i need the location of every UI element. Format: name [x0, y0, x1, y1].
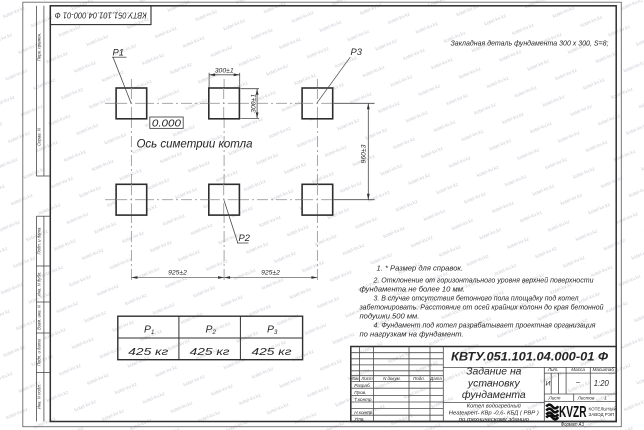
- svg-text:kotel-kv.kz: kotel-kv.kz: [274, 250, 298, 265]
- svg-text:kotel-kv.kz: kotel-kv.kz: [501, 111, 525, 126]
- svg-text:kotel-kv.kz: kotel-kv.kz: [226, 419, 250, 430]
- svg-text:Р1: Р1: [144, 325, 154, 337]
- svg-text:Р2: Р2: [239, 233, 251, 243]
- svg-text:kotel-kv.kz: kotel-kv.kz: [0, 282, 24, 297]
- svg-text:kotel-kv.kz: kotel-kv.kz: [61, 425, 85, 430]
- svg-text:kotel-kv.kz: kotel-kv.kz: [623, 398, 644, 413]
- svg-text:kotel-kv.kz: kotel-kv.kz: [210, 44, 234, 59]
- svg-text:kotel-kv.kz: kotel-kv.kz: [180, 311, 204, 326]
- svg-text:kotel-kv.kz: kotel-kv.kz: [20, 104, 44, 119]
- svg-text:kotel-kv.kz: kotel-kv.kz: [514, 85, 538, 100]
- svg-text:kotel-kv.kz: kotel-kv.kz: [205, 258, 229, 273]
- svg-text:kotel-kv.kz: kotel-kv.kz: [418, 83, 442, 98]
- svg-text:kotel-kv.kz: kotel-kv.kz: [142, 52, 166, 67]
- svg-text:425 кг: 425 кг: [252, 347, 292, 358]
- svg-text:kotel-kv.kz: kotel-kv.kz: [0, 371, 14, 386]
- svg-text:kotel-kv.kz: kotel-kv.kz: [10, 193, 34, 208]
- svg-text:kotel-kv.kz: kotel-kv.kz: [86, 33, 110, 48]
- svg-text:kotel-kv.kz: kotel-kv.kz: [319, 19, 343, 34]
- svg-text:kotel-kv.kz: kotel-kv.kz: [0, 157, 19, 172]
- svg-text:kotel-kv.kz: kotel-kv.kz: [294, 72, 318, 87]
- svg-text:kotel-kv.kz: kotel-kv.kz: [382, 225, 406, 240]
- svg-text:kotel-kv.kz: kotel-kv.kz: [250, 27, 274, 42]
- svg-text:Ось симетрии котла: Ось симетрии котла: [137, 137, 253, 151]
- svg-text:kotel-kv.kz: kotel-kv.kz: [418, 422, 442, 430]
- svg-text:kotel-kv.kz: kotel-kv.kz: [628, 184, 644, 199]
- svg-text:kotel-kv.kz: kotel-kv.kz: [261, 277, 285, 292]
- svg-text:kotel-kv.kz: kotel-kv.kz: [0, 397, 2, 412]
- svg-text:фундамента: фундамента: [462, 389, 526, 401]
- svg-text:kotel-kv.kz: kotel-kv.kz: [582, 77, 606, 92]
- svg-text:kotel-kv.kz: kotel-kv.kz: [112, 319, 136, 334]
- svg-text:kotel-kv.kz: kotel-kv.kz: [73, 60, 97, 75]
- svg-text:kotel-kv.kz: kotel-kv.kz: [307, 384, 331, 399]
- svg-text:Подп. и дата: Подп. и дата: [37, 227, 42, 255]
- svg-text:1: 1: [604, 395, 607, 400]
- svg-text:kotel-kv.kz: kotel-kv.kz: [175, 186, 199, 201]
- svg-text:925±2: 925±2: [168, 270, 187, 277]
- svg-text:kotel-kv.kz: kotel-kv.kz: [547, 219, 571, 234]
- svg-text:kotel-kv.kz: kotel-kv.kz: [317, 295, 341, 310]
- svg-text:по нагрузкам на фундамент.: по нагрузкам на фундамент.: [360, 329, 464, 338]
- svg-text:kotel-kv.kz: kotel-kv.kz: [489, 138, 513, 153]
- svg-text:2. Отклонение от горизонтально: 2. Отклонение от горизонтального уровня …: [373, 275, 595, 284]
- svg-text:kotel-kv.kz: kotel-kv.kz: [5, 68, 29, 83]
- svg-text:kotel-kv.kz: kotel-kv.kz: [491, 200, 515, 215]
- svg-text:kotel-kv.kz: kotel-kv.kz: [51, 175, 75, 190]
- svg-text:kotel-kv.kz: kotel-kv.kz: [593, 327, 617, 342]
- svg-text:kotel-kv.kz: kotel-kv.kz: [195, 8, 219, 23]
- svg-text:Лист: Лист: [360, 376, 373, 381]
- svg-text:Инв. N подл.: Инв. N подл.: [37, 384, 42, 409]
- svg-text:kotel-kv.kz: kotel-kv.kz: [496, 0, 520, 1]
- svg-text:kotel-kv.kz: kotel-kv.kz: [588, 202, 612, 217]
- svg-text:kotel-kv.kz: kotel-kv.kz: [76, 122, 100, 137]
- svg-text:kotel-kv.kz: kotel-kv.kz: [451, 217, 475, 232]
- svg-text:kotel-kv.kz: kotel-kv.kz: [86, 372, 110, 387]
- svg-text:kotel-kv.kz: kotel-kv.kz: [598, 113, 622, 128]
- svg-text:Лит.: Лит.: [547, 367, 559, 372]
- svg-text:kotel-kv.kz: kotel-kv.kz: [220, 294, 244, 309]
- svg-text:kotel-kv.kz: kotel-kv.kz: [210, 383, 234, 398]
- svg-text:Р3: Р3: [351, 47, 363, 57]
- svg-text:kotel-kv.kz: kotel-kv.kz: [238, 54, 262, 69]
- svg-text:kotel-kv.kz: kotel-kv.kz: [66, 211, 90, 226]
- svg-text:kotel-kv.kz: kotel-kv.kz: [611, 425, 635, 430]
- svg-text:kotel-kv.kz: kotel-kv.kz: [377, 100, 401, 115]
- svg-text:забетонировать. Расстояние от: забетонировать. Расстояние от осей крайн…: [359, 302, 605, 311]
- svg-text:kotel-kv.kz: kotel-kv.kz: [641, 158, 644, 173]
- svg-text:kotel-kv.kz: kotel-kv.kz: [159, 150, 183, 165]
- svg-text:kotel-kv.kz: kotel-kv.kz: [154, 25, 178, 40]
- svg-text:kotel-kv.kz: kotel-kv.kz: [251, 366, 275, 381]
- svg-text:kotel-kv.kz: kotel-kv.kz: [572, 166, 596, 181]
- svg-text:kotel-kv.kz: kotel-kv.kz: [124, 292, 148, 307]
- svg-text:Взам. инв. N: Взам. инв. N: [37, 304, 42, 330]
- svg-text:Задание на: Задание на: [466, 366, 522, 377]
- svg-text:kotel-kv.kz: kotel-kv.kz: [84, 310, 108, 325]
- svg-text:kotel-kv.kz: kotel-kv.kz: [266, 63, 290, 78]
- svg-text:kotel-kv.kz: kotel-kv.kz: [157, 427, 181, 430]
- svg-text:kotel-kv.kz: kotel-kv.kz: [185, 97, 209, 112]
- svg-text:kotel-kv.kz: kotel-kv.kz: [61, 86, 85, 101]
- svg-text:kotel-kv.kz: kotel-kv.kz: [390, 413, 414, 428]
- svg-text:kotel-kv.kz: kotel-kv.kz: [304, 322, 328, 337]
- svg-text:1. * Размер для справок.: 1. * Размер для справок.: [377, 263, 464, 272]
- svg-text:kotel-kv.kz: kotel-kv.kz: [428, 0, 452, 9]
- svg-text:0.000: 0.000: [152, 119, 181, 130]
- svg-text:kotel-kv.kz: kotel-kv.kz: [405, 110, 429, 125]
- svg-text:kotel-kv.kz: kotel-kv.kz: [580, 14, 604, 29]
- svg-text:kotel-kv.kz: kotel-kv.kz: [517, 147, 541, 162]
- svg-text:Изм.: Изм.: [350, 376, 359, 381]
- svg-text:kotel-kv.kz: kotel-kv.kz: [476, 164, 500, 179]
- svg-text:kotel-kv.kz: kotel-kv.kz: [638, 95, 644, 110]
- svg-text:N докум.: N докум.: [383, 376, 401, 381]
- svg-text:kotel-kv.kz: kotel-kv.kz: [337, 117, 361, 132]
- svg-text:kotel-kv.kz: kotel-kv.kz: [575, 228, 599, 243]
- svg-text:kotel-kv.kz: kotel-kv.kz: [53, 238, 77, 253]
- svg-text:КВТУ.051.101.04.000-01 Ф: КВТУ.051.101.04.000-01 Ф: [451, 349, 608, 363]
- svg-text:kotel-kv.kz: kotel-kv.kz: [48, 113, 72, 128]
- svg-text:kotel-kv.kz: kotel-kv.kz: [635, 33, 644, 48]
- svg-text:фундамента не более 10 мм.: фундамента не более 10 мм.: [360, 284, 466, 293]
- svg-text:kotel-kv.kz: kotel-kv.kz: [291, 10, 315, 25]
- svg-text:kotel-kv.kz: kotel-kv.kz: [355, 216, 379, 231]
- svg-text:kotel-kv.kz: kotel-kv.kz: [114, 381, 138, 396]
- svg-text:kotel-kv.kz: kotel-kv.kz: [527, 58, 551, 73]
- svg-text:kotel-kv.kz: kotel-kv.kz: [68, 274, 92, 289]
- svg-text:kotel-kv.kz: kotel-kv.kz: [129, 417, 153, 430]
- svg-text:Подп.: Подп.: [413, 376, 425, 381]
- svg-text:kotel-kv.kz: kotel-kv.kz: [235, 0, 259, 6]
- svg-text:Heatexpert- КВр -0,6- КБД ( РВ: Heatexpert- КВр -0,6- КБД ( РВР ): [449, 411, 539, 417]
- svg-text:kotel-kv.kz: kotel-kv.kz: [319, 358, 343, 373]
- svg-text:kotel-kv.kz: kotel-kv.kz: [236, 330, 260, 345]
- svg-text:Масштаб: Масштаб: [592, 367, 614, 372]
- svg-text:kotel-kv.kz: kotel-kv.kz: [301, 260, 325, 275]
- svg-text:Подп. и дата: Подп. и дата: [37, 339, 42, 367]
- svg-text:kotel-kv.kz: kotel-kv.kz: [415, 359, 439, 374]
- svg-text:kotel-kv.kz: kotel-kv.kz: [276, 313, 300, 328]
- svg-text:kotel-kv.kz: kotel-kv.kz: [0, 94, 16, 109]
- svg-text:Т.контр.: Т.контр.: [354, 397, 373, 402]
- svg-text:kotel-kv.kz: kotel-kv.kz: [433, 119, 457, 134]
- svg-text:kotel-kv.kz: kotel-kv.kz: [215, 169, 239, 184]
- svg-text:Перв. примен.: Перв. примен.: [37, 33, 42, 62]
- svg-text:И: И: [545, 380, 550, 387]
- svg-text:установку: установку: [467, 378, 521, 389]
- svg-text:kotel-kv.kz: kotel-kv.kz: [286, 224, 310, 239]
- svg-text:kotel-kv.kz: kotel-kv.kz: [170, 400, 194, 415]
- svg-text:kotel-kv.kz: kotel-kv.kz: [633, 309, 644, 324]
- svg-text:kotel-kv.kz: kotel-kv.kz: [430, 57, 454, 72]
- svg-text:kotel-kv.kz: kotel-kv.kz: [324, 144, 348, 159]
- svg-text:kotel-kv.kz: kotel-kv.kz: [446, 92, 470, 107]
- svg-text:–: –: [575, 377, 581, 386]
- svg-text:ЗАВОД РЭП: ЗАВОД РЭП: [589, 412, 615, 417]
- svg-text:kotel-kv.kz: kotel-kv.kz: [223, 356, 247, 371]
- svg-text:по техническому зданию: по техническому зданию: [459, 417, 529, 423]
- svg-text:kotel-kv.kz: kotel-kv.kz: [169, 61, 193, 76]
- svg-text:kotel-kv.kz: kotel-kv.kz: [122, 230, 146, 245]
- svg-text:kotel-kv.kz: kotel-kv.kz: [410, 235, 434, 250]
- svg-text:kotel-kv.kz: kotel-kv.kz: [415, 21, 439, 36]
- svg-text:kotel-kv.kz: kotel-kv.kz: [570, 103, 594, 118]
- svg-text:kotel-kv.kz: kotel-kv.kz: [0, 219, 22, 234]
- svg-text:kotel-kv.kz: kotel-kv.kz: [590, 264, 614, 279]
- svg-text:kotel-kv.kz: kotel-kv.kz: [392, 136, 416, 151]
- svg-text:подушки 500 мм.: подушки 500 мм.: [360, 311, 420, 320]
- svg-text:kotel-kv.kz: kotel-kv.kz: [600, 175, 624, 190]
- svg-text:kotel-kv.kz: kotel-kv.kz: [408, 172, 432, 187]
- svg-text:kotel-kv.kz: kotel-kv.kz: [268, 125, 292, 140]
- svg-text:kotel-kv.kz: kotel-kv.kz: [458, 66, 482, 81]
- svg-text:kotel-kv.kz: kotel-kv.kz: [463, 191, 487, 206]
- svg-text:kotel-kv.kz: kotel-kv.kz: [519, 209, 543, 224]
- svg-text:Масса: Масса: [571, 367, 585, 372]
- svg-text:kotel-kv.kz: kotel-kv.kz: [0, 121, 4, 136]
- svg-text:kotel-kv.kz: kotel-kv.kz: [380, 163, 404, 178]
- svg-text:925±2: 925±2: [261, 270, 280, 277]
- svg-text:425 кг: 425 кг: [190, 347, 230, 358]
- svg-text:kotel-kv.kz: kotel-kv.kz: [46, 389, 70, 404]
- svg-text:kotel-kv.kz: kotel-kv.kz: [362, 64, 386, 79]
- svg-text:kotel-kv.kz: kotel-kv.kz: [332, 331, 356, 346]
- svg-text:kotel-kv.kz: kotel-kv.kz: [266, 402, 290, 417]
- svg-text:kotel-kv.kz: kotel-kv.kz: [562, 255, 586, 270]
- svg-text:Листов: Листов: [577, 395, 595, 400]
- svg-text:960±3: 960±3: [360, 144, 367, 163]
- svg-text:kotel-kv.kz: kotel-kv.kz: [193, 285, 217, 300]
- svg-text:kotel-kv.kz: kotel-kv.kz: [101, 69, 125, 84]
- svg-text:Закладная деталь фундамента 3: Закладная деталь фундамента 300 х 300, S…: [451, 39, 609, 48]
- svg-text:kotel-kv.kz: kotel-kv.kz: [608, 24, 632, 39]
- svg-text:kotel-kv.kz: kotel-kv.kz: [149, 239, 173, 254]
- svg-text:300±1: 300±1: [250, 94, 257, 113]
- svg-text:kotel-kv.kz: kotel-kv.kz: [360, 341, 384, 356]
- svg-text:kotel-kv.kz: kotel-kv.kz: [359, 2, 383, 17]
- svg-text:kotel-kv.kz: kotel-kv.kz: [74, 399, 98, 414]
- svg-text:kotel-kv.kz: kotel-kv.kz: [339, 180, 363, 195]
- svg-text:kotel-kv.kz: kotel-kv.kz: [258, 214, 282, 229]
- svg-text:kotel-kv.kz: kotel-kv.kz: [5, 406, 29, 421]
- svg-text:kotel-kv.kz: kotel-kv.kz: [534, 245, 558, 260]
- svg-text:kotel-kv.kz: kotel-kv.kz: [162, 213, 186, 228]
- svg-text:КВТУ.051.101.04.000-01 Ф: КВТУ.051.101.04.000-01 Ф: [55, 10, 147, 19]
- svg-text:kotel-kv.kz: kotel-kv.kz: [190, 222, 214, 237]
- svg-text:kotel-kv.kz: kotel-kv.kz: [542, 94, 566, 109]
- svg-text:kotel-kv.kz: kotel-kv.kz: [0, 58, 1, 73]
- svg-text:kotel-kv.kz: kotel-kv.kz: [187, 160, 211, 175]
- svg-text:КОТЕЛЬНЫЙ: КОТЕЛЬНЫЙ: [589, 405, 617, 412]
- svg-text:kotel-kv.kz: kotel-kv.kz: [438, 244, 462, 259]
- svg-text:kotel-kv.kz: kotel-kv.kz: [291, 349, 315, 364]
- svg-text:kotel-kv.kz: kotel-kv.kz: [157, 88, 181, 103]
- svg-text:Н.контр.: Н.контр.: [354, 410, 373, 415]
- svg-text:kotel-kv.kz: kotel-kv.kz: [610, 86, 634, 101]
- svg-text:kotel-kv.kz: kotel-kv.kz: [560, 192, 584, 207]
- svg-text:Справ. N: Справ. N: [37, 127, 42, 146]
- svg-text:kotel-kv.kz: kotel-kv.kz: [631, 247, 644, 262]
- svg-text:300±1: 300±1: [215, 67, 234, 74]
- svg-text:kotel-kv.kz: kotel-kv.kz: [585, 139, 609, 154]
- svg-text:kotel-kv.kz: kotel-kv.kz: [504, 174, 528, 189]
- svg-text:Р1: Р1: [113, 47, 124, 57]
- svg-text:kotel-kv.kz: kotel-kv.kz: [109, 257, 133, 272]
- svg-text:kotel-kv.kz: kotel-kv.kz: [182, 35, 206, 50]
- svg-text:KVZR: KVZR: [559, 404, 587, 421]
- svg-text:kotel-kv.kz: kotel-kv.kz: [636, 372, 644, 387]
- svg-text:kotel-kv.kz: kotel-kv.kz: [155, 364, 179, 379]
- svg-text:kotel-kv.kz: kotel-kv.kz: [137, 266, 161, 281]
- svg-text:kotel-kv.kz: kotel-kv.kz: [0, 183, 6, 198]
- svg-text:kotel-kv.kz: kotel-kv.kz: [552, 5, 576, 20]
- svg-text:kotel-kv.kz: kotel-kv.kz: [625, 122, 644, 137]
- svg-text:kotel-kv.kz: kotel-kv.kz: [448, 155, 472, 170]
- svg-text:kotel-kv.kz: kotel-kv.kz: [271, 188, 295, 203]
- svg-text:kotel-kv.kz: kotel-kv.kz: [544, 156, 568, 171]
- svg-text:kotel-kv.kz: kotel-kv.kz: [223, 18, 247, 33]
- svg-text:kotel-kv.kz: kotel-kv.kz: [375, 38, 399, 53]
- svg-text:425 кг: 425 кг: [128, 347, 168, 358]
- svg-text:kotel-kv.kz: kotel-kv.kz: [388, 350, 412, 365]
- svg-text:Утв.: Утв.: [354, 417, 364, 422]
- svg-text:kotel-kv.kz: kotel-kv.kz: [147, 177, 171, 192]
- svg-text:kotel-kv.kz: kotel-kv.kz: [31, 353, 55, 368]
- svg-text:kotel-kv.kz: kotel-kv.kz: [367, 189, 391, 204]
- svg-text:kotel-kv.kz: kotel-kv.kz: [81, 247, 105, 262]
- svg-text:kotel-kv.kz: kotel-kv.kz: [91, 158, 115, 173]
- svg-text:kotel-kv.kz: kotel-kv.kz: [96, 283, 120, 298]
- svg-text:kotel-kv.kz: kotel-kv.kz: [466, 253, 490, 268]
- svg-text:kotel-kv.kz: kotel-kv.kz: [473, 102, 497, 117]
- svg-text:kotel-kv.kz: kotel-kv.kz: [483, 13, 507, 28]
- svg-text:kotel-kv.kz: kotel-kv.kz: [620, 0, 644, 12]
- svg-text:kotel-kv.kz: kotel-kv.kz: [278, 36, 302, 51]
- svg-text:kotel-kv.kz: kotel-kv.kz: [623, 60, 644, 75]
- svg-text:kotel-kv.kz: kotel-kv.kz: [256, 152, 280, 167]
- svg-text:kotel-kv.kz: kotel-kv.kz: [423, 208, 447, 223]
- svg-text:kotel-kv.kz: kotel-kv.kz: [540, 370, 564, 385]
- svg-text:kotel-kv.kz: kotel-kv.kz: [152, 302, 176, 317]
- svg-text:kotel-kv.kz: kotel-kv.kz: [13, 255, 37, 270]
- svg-text:kotel-kv.kz: kotel-kv.kz: [56, 300, 80, 315]
- svg-text:kotel-kv.kz: kotel-kv.kz: [0, 246, 9, 261]
- svg-text:kotel-kv.kz: kotel-kv.kz: [390, 74, 414, 89]
- svg-text:kotel-kv.kz: kotel-kv.kz: [615, 211, 639, 226]
- svg-text:kotel-kv.kz: kotel-kv.kz: [243, 178, 267, 193]
- svg-text:kotel-kv.kz: kotel-kv.kz: [532, 183, 556, 198]
- svg-text:kotel-kv.kz: kotel-kv.kz: [99, 346, 123, 361]
- svg-text:kotel-kv.kz: kotel-kv.kz: [605, 300, 629, 315]
- svg-text:kotel-kv.kz: kotel-kv.kz: [7, 130, 31, 145]
- svg-text:Р3: Р3: [267, 325, 278, 337]
- svg-text:kotel-kv.kz: kotel-kv.kz: [507, 236, 531, 251]
- svg-text:3. В случае отсутствия бетонно: 3. В случае отсутствия бетонного пола пл…: [374, 293, 580, 302]
- svg-text:Формат А3: Формат А3: [561, 422, 584, 428]
- svg-text:kotel-kv.kz: kotel-kv.kz: [104, 132, 128, 147]
- svg-text:kotel-kv.kz: kotel-kv.kz: [182, 374, 206, 389]
- svg-text:kotel-kv.kz: kotel-kv.kz: [347, 28, 371, 43]
- svg-text:kotel-kv.kz: kotel-kv.kz: [420, 146, 444, 161]
- svg-text:kotel-kv.kz: kotel-kv.kz: [306, 46, 330, 61]
- svg-text:4. Фундамент под котел разраба: 4. Фундамент под котел разрабатывает про…: [374, 320, 596, 329]
- svg-text:kotel-kv.kz: kotel-kv.kz: [71, 336, 95, 351]
- svg-text:Инв. N дубл.: Инв. N дубл.: [37, 272, 42, 297]
- svg-text:kotel-kv.kz: kotel-kv.kz: [486, 75, 510, 90]
- svg-text:kotel-kv.kz: kotel-kv.kz: [479, 227, 503, 242]
- svg-text:kotel-kv.kz: kotel-kv.kz: [284, 161, 308, 176]
- svg-text:kotel-kv.kz: kotel-kv.kz: [529, 120, 553, 135]
- svg-text:kotel-kv.kz: kotel-kv.kz: [279, 375, 303, 390]
- svg-text:kotel-kv.kz: kotel-kv.kz: [342, 242, 366, 257]
- svg-text:kotel-kv.kz: kotel-kv.kz: [387, 11, 411, 26]
- svg-text:kotel-kv.kz: kotel-kv.kz: [23, 166, 47, 181]
- svg-text:kotel-kv.kz: kotel-kv.kz: [443, 369, 467, 384]
- svg-text:kotel-kv.kz: kotel-kv.kz: [603, 238, 627, 253]
- svg-text:kotel-kv.kz: kotel-kv.kz: [294, 411, 318, 426]
- svg-text:kotel-kv.kz: kotel-kv.kz: [94, 221, 118, 236]
- svg-text:Лист: Лист: [548, 395, 561, 400]
- svg-text:kotel-kv.kz: kotel-kv.kz: [45, 50, 69, 65]
- svg-text:kotel-kv.kz: kotel-kv.kz: [142, 391, 166, 406]
- svg-text:Дата: Дата: [429, 376, 442, 381]
- svg-text:kotel-kv.kz: kotel-kv.kz: [58, 24, 82, 39]
- svg-text:kotel-kv.kz: kotel-kv.kz: [621, 336, 644, 351]
- svg-text:Котел водогрейный: Котел водогрейный: [467, 403, 521, 410]
- svg-text:kotel-kv.kz: kotel-kv.kz: [233, 267, 257, 282]
- svg-text:kotel-kv.kz: kotel-kv.kz: [296, 135, 320, 150]
- svg-text:kotel-kv.kz: kotel-kv.kz: [511, 22, 535, 37]
- svg-text:Пров.: Пров.: [354, 390, 366, 395]
- svg-text:kotel-kv.kz: kotel-kv.kz: [289, 286, 313, 301]
- svg-text:kotel-kv.kz: kotel-kv.kz: [238, 392, 262, 407]
- svg-text:kotel-kv.kz: kotel-kv.kz: [0, 32, 14, 47]
- svg-text:kotel-kv.kz: kotel-kv.kz: [58, 363, 82, 378]
- svg-text:kotel-kv.kz: kotel-kv.kz: [63, 149, 87, 164]
- svg-text:kotel-kv.kz: kotel-kv.kz: [461, 128, 485, 143]
- svg-text:kotel-kv.kz: kotel-kv.kz: [78, 185, 102, 200]
- svg-text:kotel-kv.kz: kotel-kv.kz: [557, 130, 581, 145]
- svg-text:kotel-kv.kz: kotel-kv.kz: [436, 181, 460, 196]
- svg-text:kotel-kv.kz: kotel-kv.kz: [43, 327, 67, 342]
- svg-text:kotel-kv.kz: kotel-kv.kz: [0, 308, 12, 323]
- svg-text:kotel-kv.kz: kotel-kv.kz: [402, 47, 426, 62]
- svg-text:kotel-kv.kz: kotel-kv.kz: [329, 269, 353, 284]
- svg-text:1:20: 1:20: [594, 379, 609, 388]
- svg-text:kotel-kv.kz: kotel-kv.kz: [311, 171, 335, 186]
- svg-text:Разраб.: Разраб.: [354, 383, 371, 388]
- svg-text:kotel-kv.kz: kotel-kv.kz: [177, 249, 201, 264]
- svg-text:kotel-kv.kz: kotel-kv.kz: [101, 408, 125, 423]
- svg-text:kotel-kv.kz: kotel-kv.kz: [554, 67, 578, 82]
- svg-text:kotel-kv.kz: kotel-kv.kz: [499, 49, 523, 64]
- svg-text:kotel-kv.kz: kotel-kv.kz: [395, 199, 419, 214]
